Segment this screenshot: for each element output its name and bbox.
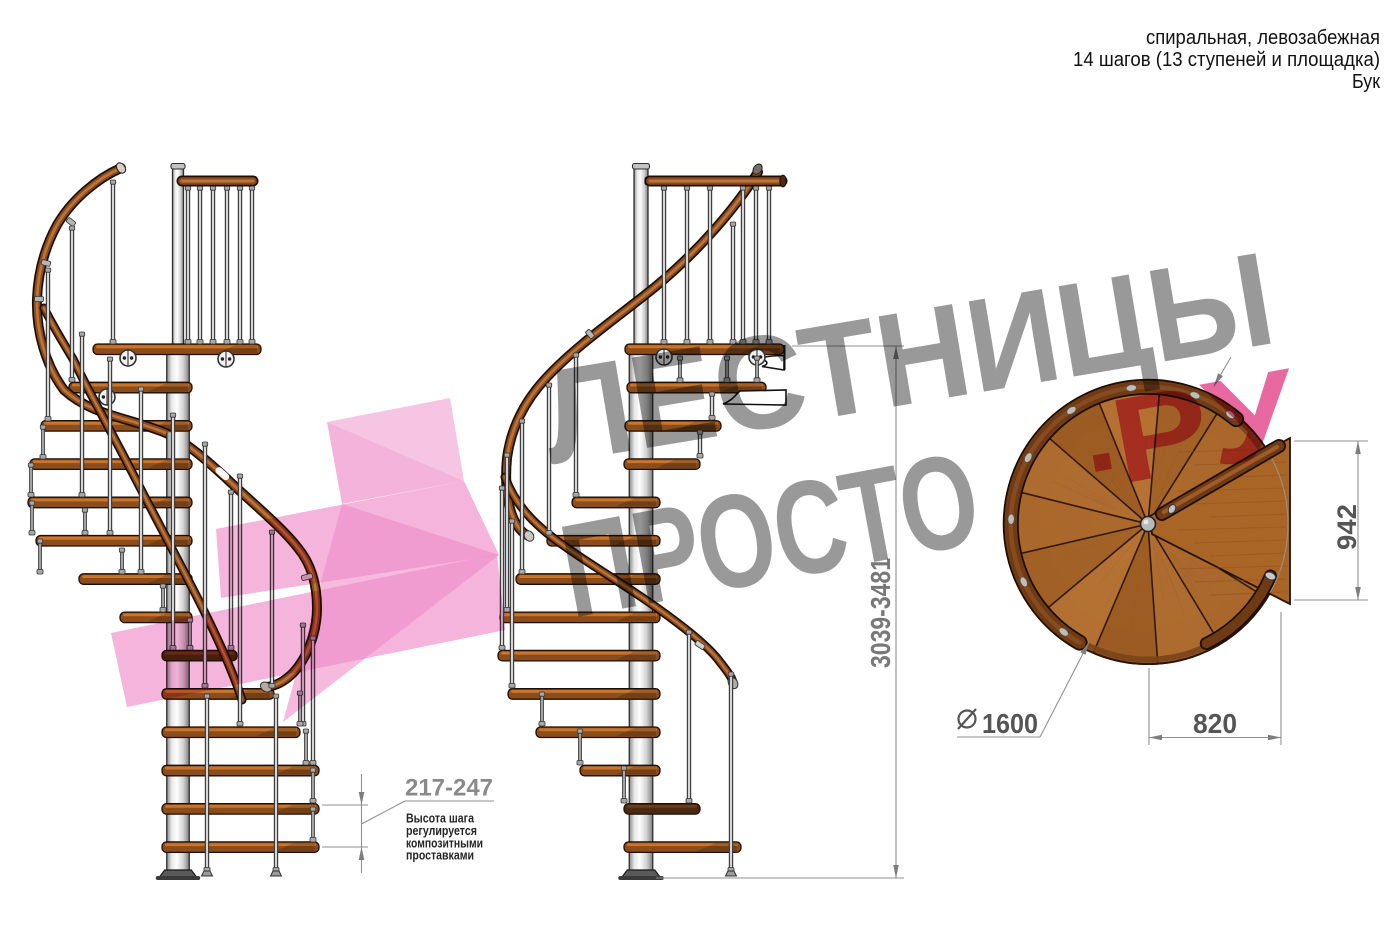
svg-text:14 шагов (13 ступеней и площад: 14 шагов (13 ступеней и площадка) [1073,48,1380,71]
svg-text:Бук: Бук [1352,70,1381,93]
svg-text:1600: 1600 [982,708,1038,739]
svg-text:проставками: проставками [406,849,474,863]
svg-text:спиральная, левозабежная: спиральная, левозабежная [1146,26,1380,49]
svg-text:820: 820 [1193,708,1237,739]
svg-text:217-247: 217-247 [405,775,493,802]
svg-text:942: 942 [1332,504,1362,550]
